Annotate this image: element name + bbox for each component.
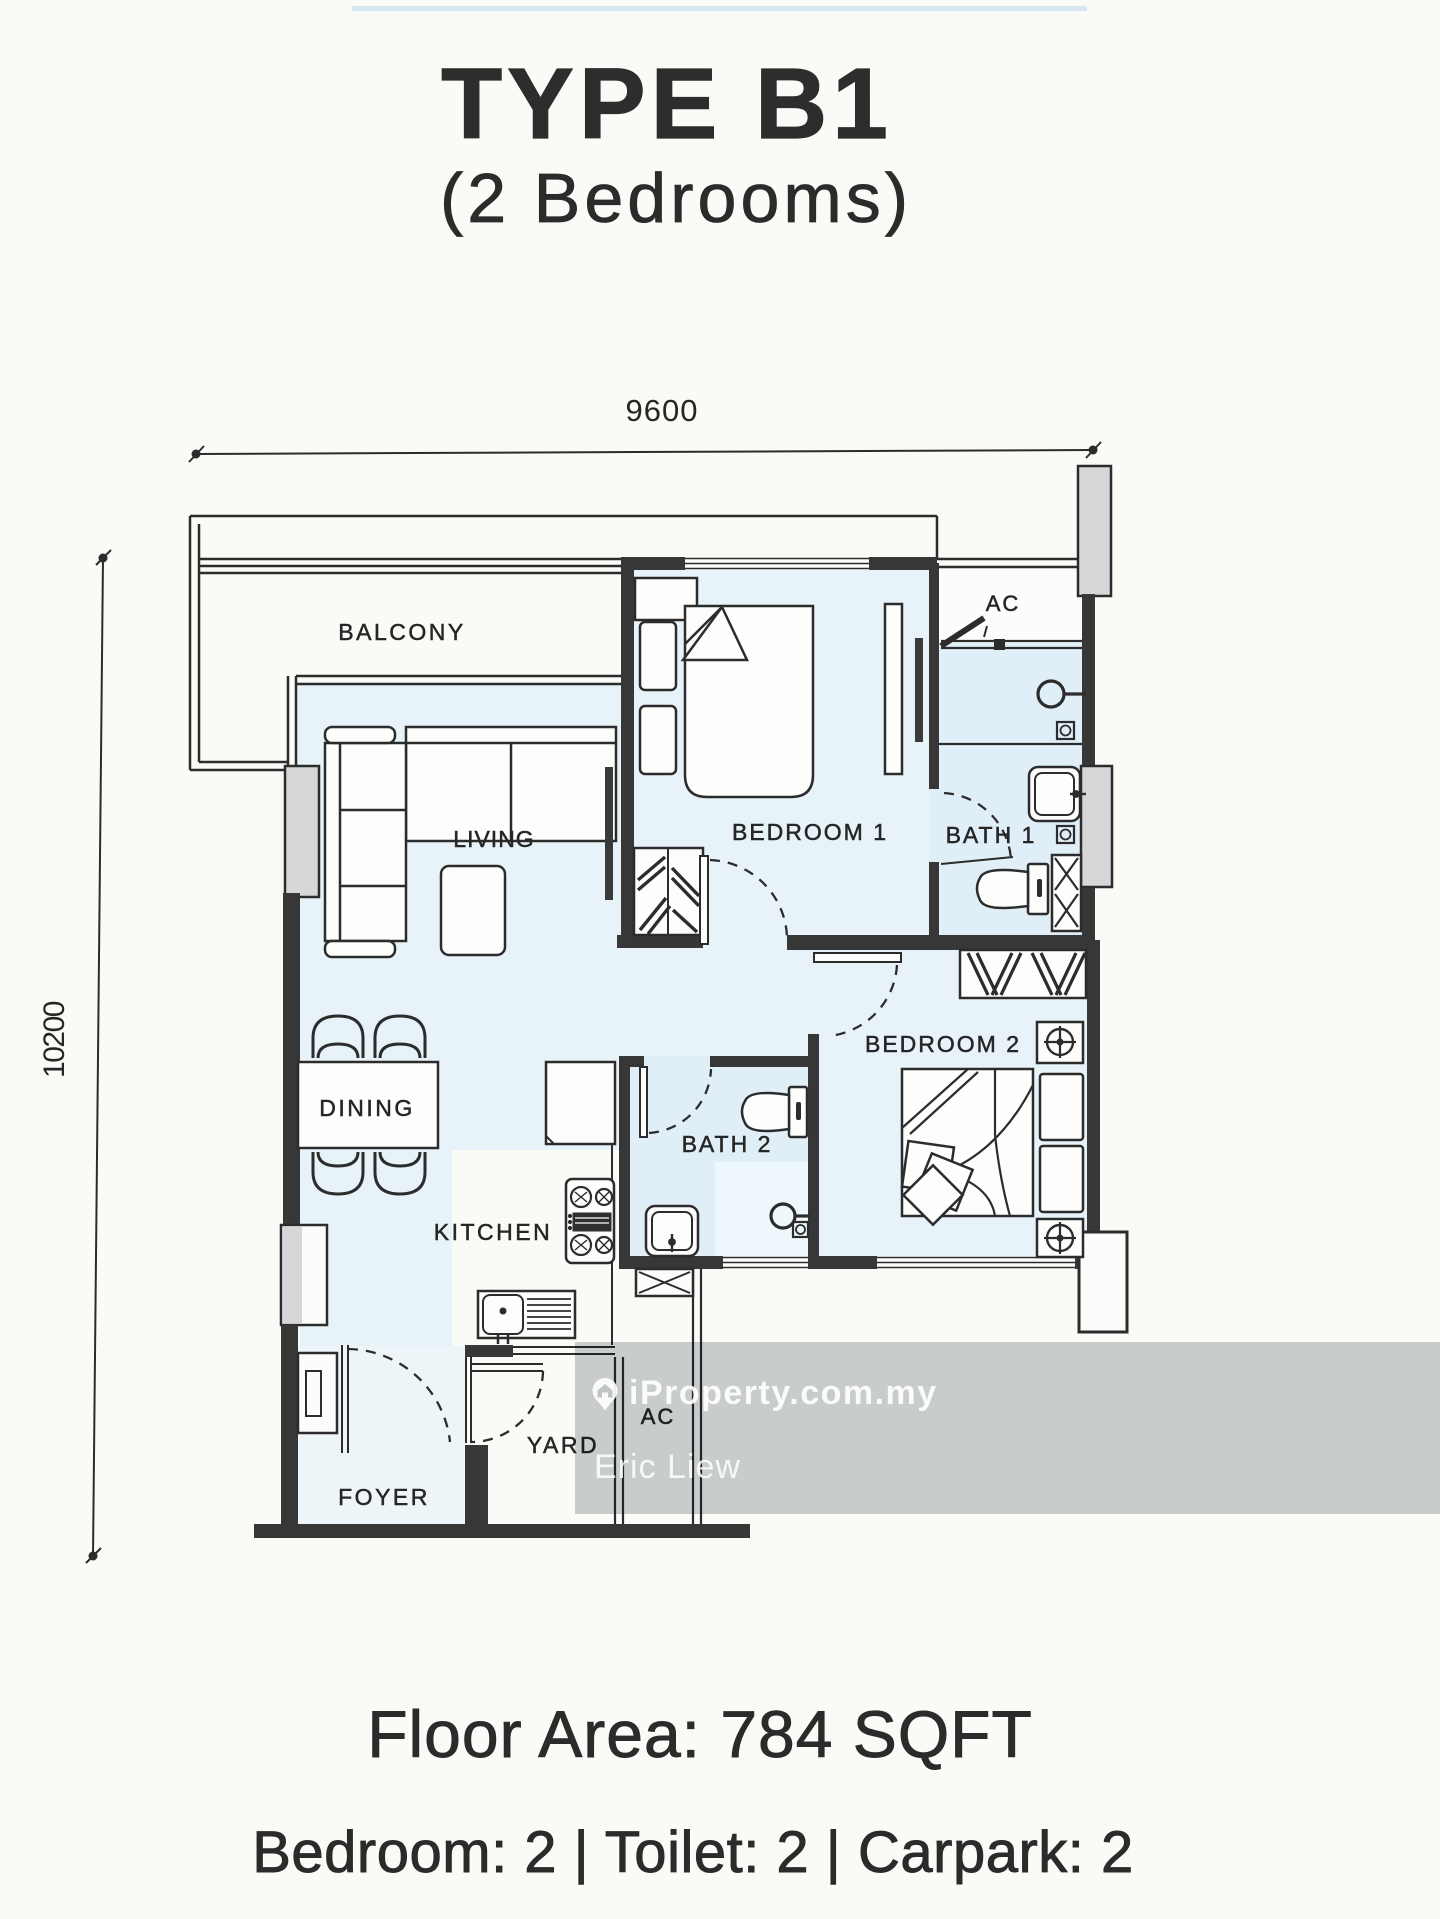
svg-text:TYPE B1: TYPE B1 xyxy=(441,48,893,160)
svg-text:10200: 10200 xyxy=(38,1001,71,1078)
svg-text:9600: 9600 xyxy=(626,393,699,428)
svg-text:BATH 2: BATH 2 xyxy=(682,1131,773,1157)
svg-text:LIVING: LIVING xyxy=(453,826,534,852)
svg-text:Eric Liew: Eric Liew xyxy=(594,1448,741,1486)
svg-text:AC: AC xyxy=(986,591,1021,616)
svg-text:iProperty.com.my: iProperty.com.my xyxy=(629,1374,938,1412)
svg-text:Bedroom: 2 | Toilet: 2 | Carpa: Bedroom: 2 | Toilet: 2 | Carpark: 2 xyxy=(252,1820,1134,1885)
svg-text:Floor Area: 784 SQFT: Floor Area: 784 SQFT xyxy=(367,1697,1033,1771)
svg-text:BEDROOM 2: BEDROOM 2 xyxy=(865,1031,1021,1057)
svg-text:DINING: DINING xyxy=(319,1095,415,1121)
svg-text:BATH 1: BATH 1 xyxy=(946,822,1037,848)
svg-text:FOYER: FOYER xyxy=(338,1484,430,1510)
svg-text:KITCHEN: KITCHEN xyxy=(434,1219,552,1245)
svg-text:BALCONY: BALCONY xyxy=(338,619,465,645)
svg-text:(2 Bedrooms): (2 Bedrooms) xyxy=(440,159,912,237)
svg-text:BEDROOM 1: BEDROOM 1 xyxy=(732,819,888,845)
